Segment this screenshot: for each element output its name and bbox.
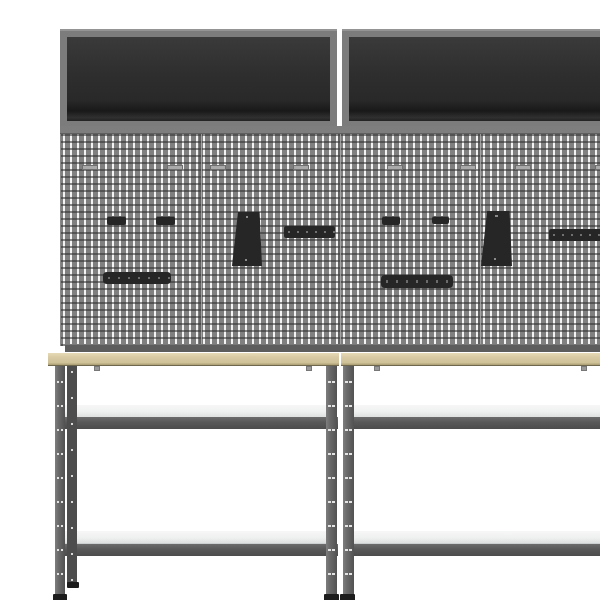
wooden-worktop-left [48,353,339,366]
upper-rail-right-bench [343,417,600,429]
inner-leg-right-bench [343,365,354,597]
pegboard-panel-divider [478,134,481,346]
pegboard-mount-slot [210,165,226,170]
cabinet-open-front [67,37,330,121]
worktop-clip [94,366,100,371]
inner-leg-left-bench [326,365,337,597]
wall-cabinet-right [342,29,600,126]
pegboard-mount-slot [82,165,98,170]
product-photo-workbench-set [40,16,600,600]
leg-foot [67,582,79,588]
leg-foot [324,594,339,600]
leg-foot [340,594,355,600]
upper-rail-left-bench [56,417,338,429]
pegboard-panel-divider [199,134,202,346]
pegboard-top-rail [60,126,600,134]
lower-shelf-right-bench [344,531,600,544]
small-hook [156,216,175,225]
tool-bar [381,275,453,288]
lower-rail-left-bench [56,544,338,556]
tool-strip [549,229,600,241]
front-leg-left-bench [55,365,65,597]
pegboard-mount-slot [460,165,476,170]
lower-shelf-left-bench [58,531,337,544]
pegboard-bottom-rail [65,344,600,352]
pegboard-mount-slot [515,165,531,170]
pegboard-wall [60,126,600,352]
worktop-clip [374,366,380,371]
lower-rail-right-bench [343,544,600,556]
tool-bar [103,272,171,284]
wall-cabinet-left [60,29,337,126]
leg-foot [53,594,67,600]
rear-leg-left-bench [67,365,77,586]
pegboard-mount-slot [293,165,309,170]
pegboard-panel-divider [338,134,341,346]
tool-strip [284,226,335,238]
cabinet-open-front [349,37,600,121]
worktop-clip [306,366,312,371]
small-hook [382,216,400,225]
wooden-worktop-right [341,353,600,366]
pegboard-mount-slot [387,165,403,170]
pegboard-mount-slot [595,165,600,170]
worktop-clip [581,366,587,371]
small-hook [107,216,126,225]
pegboard-mount-slot [167,165,183,170]
small-hook [432,216,449,224]
